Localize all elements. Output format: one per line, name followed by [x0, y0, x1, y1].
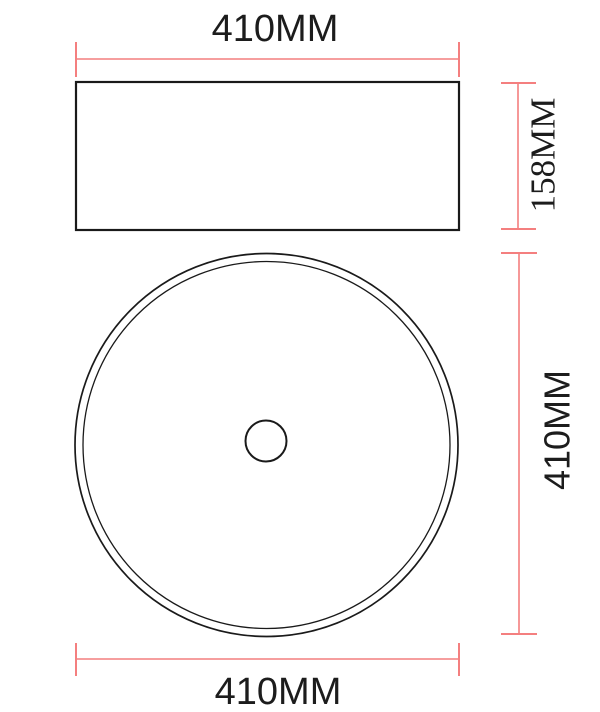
- top-width-dimension: 410MM: [76, 8, 459, 77]
- basin-side-view-rect: [76, 82, 459, 230]
- side-height-label: 158MM: [524, 98, 563, 213]
- diameter-bottom-label: 410MM: [215, 671, 342, 712]
- diameter-bottom-dimension: 410MM: [76, 643, 459, 712]
- top-width-label: 410MM: [212, 8, 339, 50]
- diameter-right-dimension: 410MM: [501, 253, 578, 634]
- technical-drawing-canvas: 410MM 158MM 410MM: [0, 0, 600, 712]
- drain-hole-circle: [246, 421, 287, 462]
- side-height-dimension: 158MM: [501, 83, 563, 229]
- basin-outer-circle: [75, 254, 458, 637]
- basin-inner-circle: [83, 262, 450, 629]
- front-view: [76, 82, 459, 230]
- top-view: [75, 254, 458, 637]
- diameter-right-label: 410MM: [537, 370, 578, 490]
